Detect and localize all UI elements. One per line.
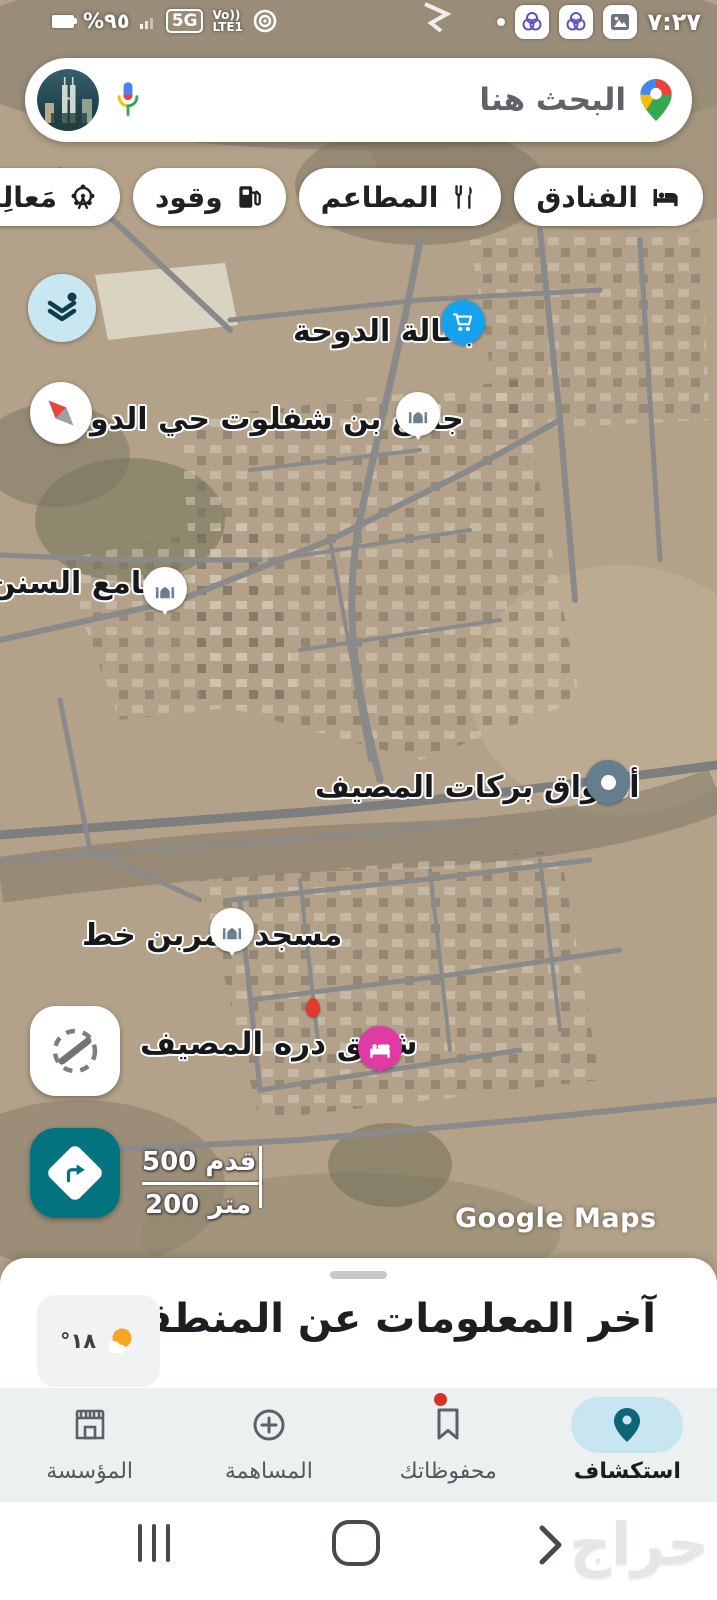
chip-hotels[interactable]: الفنادق [514, 168, 703, 226]
drag-handle[interactable] [330, 1271, 387, 1279]
grocery-cart-pin[interactable] [441, 300, 485, 344]
layers-icon [42, 288, 82, 328]
notification-dot-icon [497, 18, 505, 26]
scale-feet-label: 500 قدم [142, 1147, 256, 1177]
explore-pin-icon [612, 1407, 642, 1443]
battery-icon [52, 15, 74, 28]
chip-label: وقود [155, 181, 223, 214]
scale-bar-tick [259, 1146, 262, 1208]
profile-avatar[interactable] [37, 69, 99, 131]
cart-icon [450, 309, 476, 335]
mosque-pin[interactable] [143, 567, 187, 611]
avatar-city-photo [37, 69, 99, 131]
mosque-pin[interactable] [396, 392, 440, 436]
signal-icon [139, 12, 157, 30]
compass-needle-icon [39, 391, 83, 435]
contribute-plus-icon [250, 1406, 288, 1444]
bottom-sheet[interactable]: آخر المعلومات عن المنطقة ١٨° [0, 1258, 717, 1388]
data-saver-icon [252, 8, 278, 34]
nav-label-contribute: المساهمة [225, 1459, 313, 1484]
mosque-icon [219, 917, 245, 943]
hotel-bed-icon [649, 181, 681, 213]
nav-label-saved: محفوظاتك [399, 1459, 496, 1484]
scale-bar-line [142, 1182, 262, 1185]
place-dot-pin[interactable] [586, 760, 630, 804]
chip-restaurants[interactable]: المطاعم [299, 168, 502, 226]
place-dot-icon [601, 775, 616, 790]
attractions-icon [68, 182, 98, 212]
bottom-navigation: استكشاف محفوظاتك المساهمة [0, 1388, 717, 1502]
nav-label-explore: استكشاف [574, 1459, 681, 1484]
google-maps-watermark: Google Maps [455, 1203, 657, 1234]
weather-sun-cloud-icon [103, 1326, 137, 1356]
nav-item-contribute[interactable]: المساهمة [179, 1388, 358, 1502]
network-5g-badge: 5G [166, 9, 204, 33]
mosque-icon [405, 401, 431, 427]
directions-button[interactable] [30, 1128, 120, 1218]
turn-right-arrow-icon [62, 1160, 88, 1186]
mosque-icon [152, 576, 178, 602]
recents-bar [152, 1524, 156, 1562]
bed-icon [367, 1035, 393, 1061]
voice-search-mic-icon[interactable] [113, 80, 143, 120]
map-label-mosque-sunan[interactable]: جامع السنن [0, 566, 164, 601]
screenshot-notification-icon [603, 5, 637, 39]
sheet-title: آخر المعلومات عن المنطقة [120, 1296, 656, 1342]
google-maps-app-screen: بقالة الدوحة جامع بن شفلوت حي الدو جامع … [0, 0, 717, 1600]
chip-label: المطاعم [321, 181, 439, 214]
clock-time: ٧:٢٧ [647, 8, 701, 36]
lte-label: LTE1 [212, 21, 242, 33]
nav-item-business[interactable]: المؤسسة [0, 1388, 179, 1502]
directions-diamond-icon [45, 1143, 104, 1202]
nav-item-saved[interactable]: محفوظاتك [359, 1388, 538, 1502]
compass-button[interactable] [30, 382, 92, 444]
android-navigation-bar: حراج [0, 1502, 717, 1600]
small-red-marker[interactable] [306, 998, 320, 1017]
search-input[interactable]: البحث هنا [157, 82, 626, 118]
nav-label-business: المؤسسة [46, 1459, 133, 1484]
status-bar: %٩٥ 5G Vo)) LTE1 [0, 0, 717, 42]
mosque-pin[interactable] [210, 908, 254, 952]
my-location-button[interactable] [30, 1006, 120, 1096]
status-bar-left: %٩٥ 5G Vo)) LTE1 [52, 8, 278, 34]
recents-bar [138, 1524, 142, 1562]
back-button[interactable] [536, 1522, 566, 1568]
temperature-label: ١٨° [60, 1329, 96, 1353]
active-tab-pill [571, 1397, 683, 1453]
volte-indicator: Vo)) LTE1 [212, 9, 242, 33]
restaurant-icon [449, 182, 479, 212]
layers-button[interactable] [28, 274, 96, 342]
category-chips-row: الفنادق المطاعم وقود [0, 168, 703, 226]
hotel-bed-pin[interactable] [358, 1026, 402, 1070]
nav-item-explore[interactable]: استكشاف [538, 1388, 717, 1502]
recents-bar [166, 1524, 170, 1562]
location-disabled-icon [47, 1023, 103, 1079]
chip-label: مَعالِم [0, 181, 57, 214]
scale-meters-label: 200 متر [145, 1190, 251, 1220]
home-button[interactable] [332, 1520, 380, 1566]
status-bar-right: ٧:٢٧ [497, 5, 701, 39]
battery-percent: %٩٥ [83, 9, 130, 33]
haraj-watermark: حراج [569, 1510, 709, 1578]
business-storefront-icon [70, 1406, 110, 1444]
google-maps-pin-icon [640, 79, 672, 121]
recents-button[interactable] [138, 1524, 170, 1562]
chip-landmarks[interactable]: مَعالِم [0, 168, 120, 226]
bookmark-icon [432, 1405, 464, 1445]
weather-chip[interactable]: ١٨° [37, 1295, 160, 1387]
search-bar[interactable]: البحث هنا [25, 58, 692, 142]
chip-label: الفنادق [536, 181, 638, 214]
app-notification-icon [559, 5, 593, 39]
app-notification-icon [515, 5, 549, 39]
fuel-pump-icon [234, 182, 264, 212]
chip-fuel[interactable]: وقود [133, 168, 286, 226]
